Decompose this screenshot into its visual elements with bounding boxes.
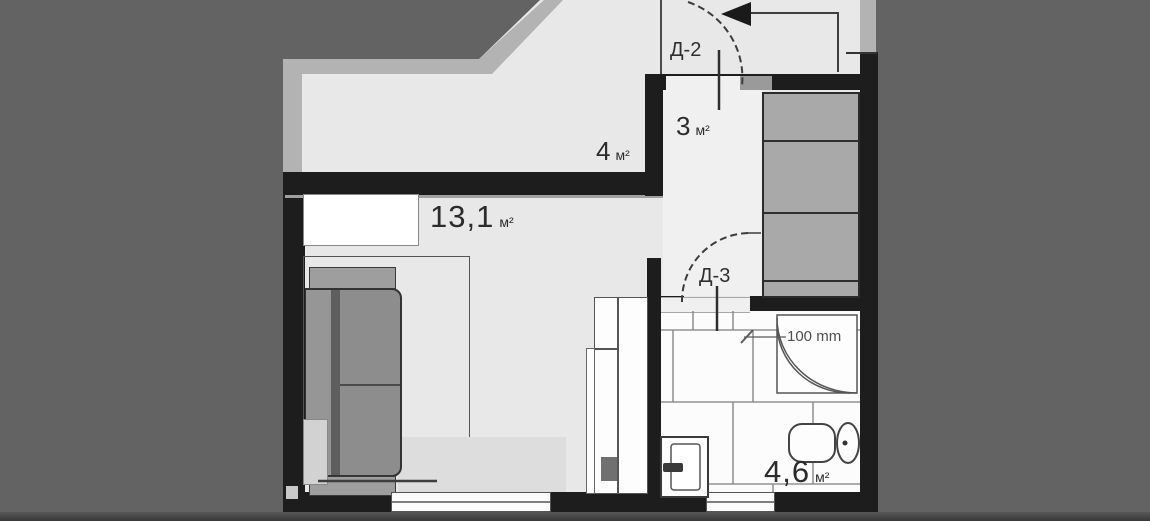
shower-dimension-label: 100 mm (787, 329, 841, 344)
door-2-label: Д-2 (670, 40, 701, 60)
room-label-living: 13,1м² (430, 201, 514, 232)
floor-plan: Д-2 Д-3 4м² 3м² 13,1м² 4,6м² 100 mm (0, 0, 1150, 521)
washing-machine-icon (661, 437, 708, 497)
room-label-entry: 3м² (676, 113, 710, 139)
shower-icon (777, 315, 857, 393)
door-3-label: Д-3 (699, 266, 730, 286)
plan-linework (0, 0, 1150, 521)
room-label-corridor: 4м² (596, 138, 630, 164)
sink-icon (837, 423, 859, 463)
entry-arrow-icon (721, 2, 838, 72)
room-label-bathroom: 4,6м² (764, 456, 829, 487)
